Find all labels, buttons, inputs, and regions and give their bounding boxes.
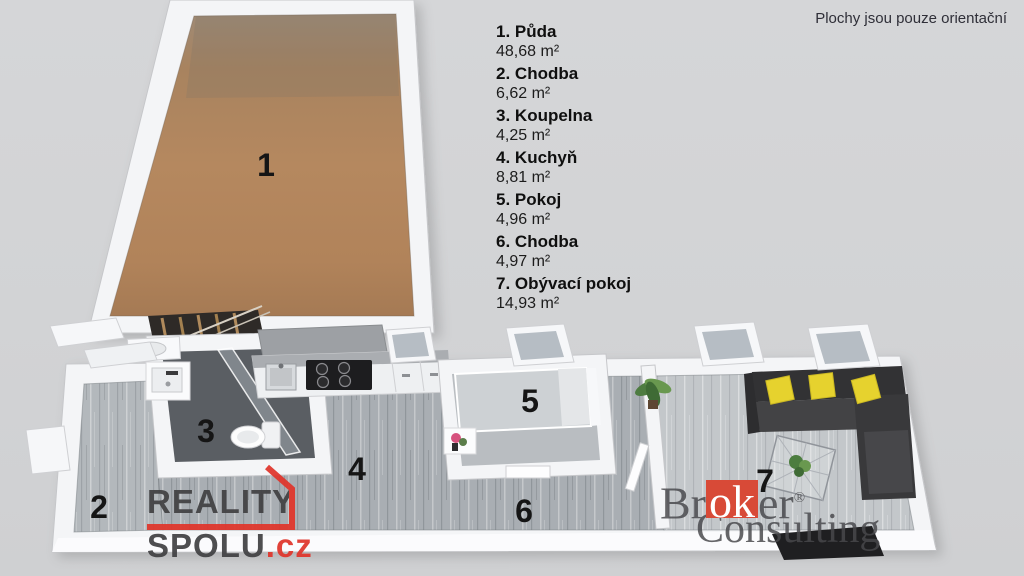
floorplan-page: 1 2 3 4 5 6 7 Plochy jsou pouze orientač… (0, 0, 1024, 576)
skylight-window (506, 324, 574, 366)
legend-number: 1. (496, 22, 510, 41)
plan-label-2: 2 (90, 489, 108, 525)
legend-room-area: 14,93 m² (496, 294, 631, 314)
legend-room-area: 6,62 m² (496, 84, 631, 104)
legend-item: 4. Kuchyň 8,81 m² (496, 148, 631, 188)
legend-room-area: 8,81 m² (496, 168, 631, 188)
yellow-pillow (809, 373, 836, 400)
kitchen-sink (266, 364, 296, 391)
room5-door (506, 466, 550, 478)
yellow-pillow (766, 376, 794, 404)
spolu-text: SPOLU.cz (147, 528, 313, 564)
legend-item: 3. Koupelna 4,25 m² (496, 106, 631, 146)
legend-number: 4. (496, 148, 510, 167)
legend-room-name: Pokoj (515, 190, 561, 209)
registered-mark: ® (794, 490, 805, 506)
legend-item: 6. Chodba 4,97 m² (496, 232, 631, 272)
legend-number: 2. (496, 64, 510, 83)
legend-room-area: 4,96 m² (496, 210, 631, 230)
legend-item: 2. Chodba 6,62 m² (496, 64, 631, 104)
legend-item: 5. Pokoj 4,96 m² (496, 190, 631, 230)
legend-room-area: 4,25 m² (496, 126, 631, 146)
door-panel (50, 318, 124, 347)
plan-label-6: 6 (515, 493, 533, 529)
legend-room-name: Kuchyň (515, 148, 577, 167)
legend-room-name: Půda (515, 22, 557, 41)
reality-spolu-logo: REALITY SPOLU.cz (147, 484, 313, 564)
bedside-table (444, 428, 476, 454)
sink-cabinet (146, 362, 190, 400)
plan-label-4: 4 (348, 451, 366, 487)
legend-number: 3. (496, 106, 510, 125)
cabinet-handle (402, 374, 410, 377)
faucet (166, 371, 178, 375)
plant-pot (648, 400, 658, 409)
skylight-window (694, 322, 764, 366)
legend-room-area: 4,97 m² (496, 252, 631, 272)
plan-label-5: 5 (521, 383, 539, 419)
legend-number: 7. (496, 274, 510, 293)
cz-tld: .cz (266, 527, 313, 564)
legend-number: 6. (496, 232, 510, 251)
attic-floor-shadow (186, 14, 399, 98)
legend-room-area: 48,68 m² (496, 42, 631, 62)
reality-text: REALITY (147, 484, 313, 520)
room-legend: 1. Půda 48,68 m² 2. Chodba 6,62 m² 3. Ko… (496, 22, 631, 316)
legend-room-name: Chodba (515, 64, 578, 83)
cooktop (306, 360, 372, 390)
bed-pillows (558, 368, 590, 426)
broker-red-square: ok (706, 480, 758, 518)
legend-number: 5. (496, 190, 510, 209)
skylight-window (808, 324, 880, 370)
cabinet-handle (430, 373, 438, 376)
disclaimer-text: Plochy jsou pouze orientační (815, 10, 1007, 27)
legend-item: 7. Obývací pokoj 14,93 m² (496, 274, 631, 314)
legend-room-name: Chodba (515, 232, 578, 251)
door-panel (26, 426, 70, 474)
plan-label-3: 3 (197, 413, 215, 449)
vase (452, 443, 458, 451)
broker-consulting-logo: Broker® Consulting (660, 476, 880, 549)
skylight-window (386, 327, 436, 363)
legend-room-name: Obývací pokoj (515, 274, 631, 293)
legend-item: 1. Půda 48,68 m² (496, 22, 631, 62)
legend-room-name: Koupelna (515, 106, 592, 125)
plan-label-1: 1 (257, 147, 275, 183)
